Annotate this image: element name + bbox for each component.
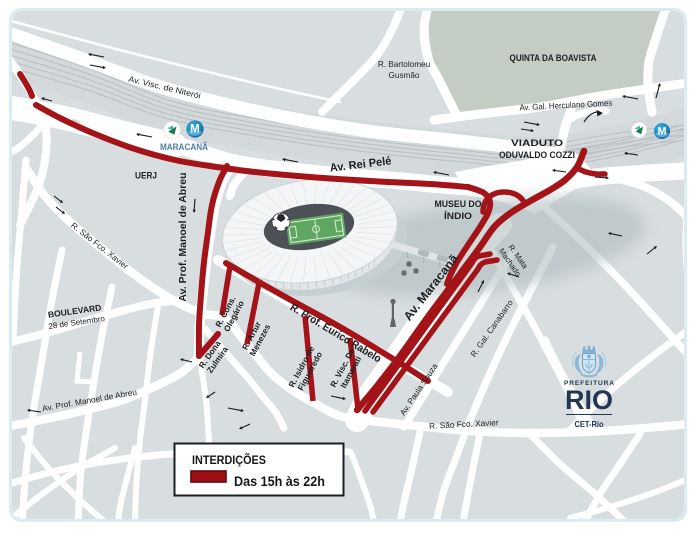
svg-text:M: M (658, 125, 667, 137)
svg-text:CET-Rio: CET-Rio (575, 420, 604, 429)
svg-text:INTERDIÇÕES: INTERDIÇÕES (192, 454, 266, 467)
svg-text:Das 15h às 22h: Das 15h às 22h (234, 473, 325, 489)
svg-text:MARACANÃ: MARACANÃ (160, 142, 208, 152)
svg-text:QUINTA DA BOAVISTA: QUINTA DA BOAVISTA (510, 53, 598, 63)
svg-text:Av. Prof. Manoel de Abreu: Av. Prof. Manoel de Abreu (177, 172, 189, 301)
svg-text:UERJ: UERJ (135, 171, 157, 181)
svg-text:M: M (190, 123, 200, 136)
svg-text:RIO: RIO (565, 385, 613, 415)
